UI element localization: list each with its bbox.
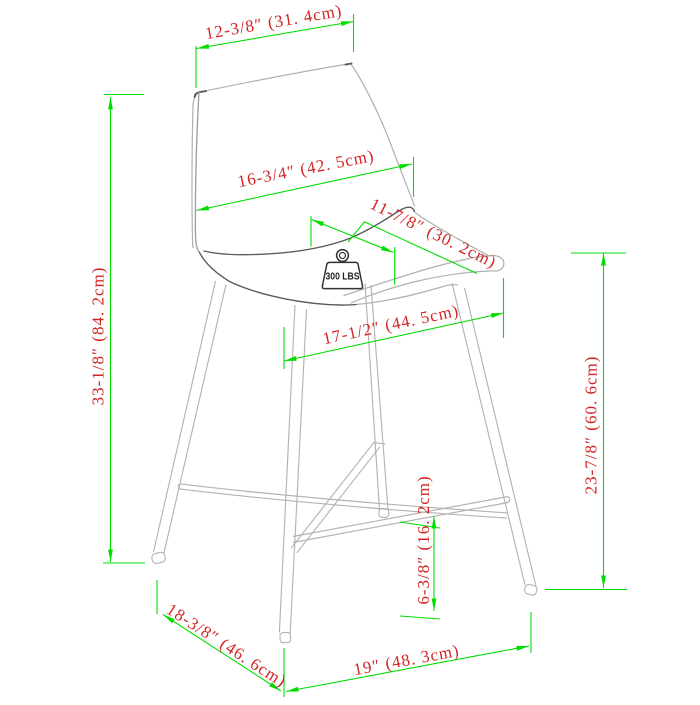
svg-text:6-3/8″ (16. 2cm): 6-3/8″ (16. 2cm): [414, 475, 433, 604]
svg-text:33-1/8″ (84. 2cm): 33-1/8″ (84. 2cm): [89, 267, 108, 406]
svg-text:300 LBS: 300 LBS: [326, 272, 360, 283]
svg-text:23-7/8″ (60. 6cm): 23-7/8″ (60. 6cm): [582, 356, 601, 495]
